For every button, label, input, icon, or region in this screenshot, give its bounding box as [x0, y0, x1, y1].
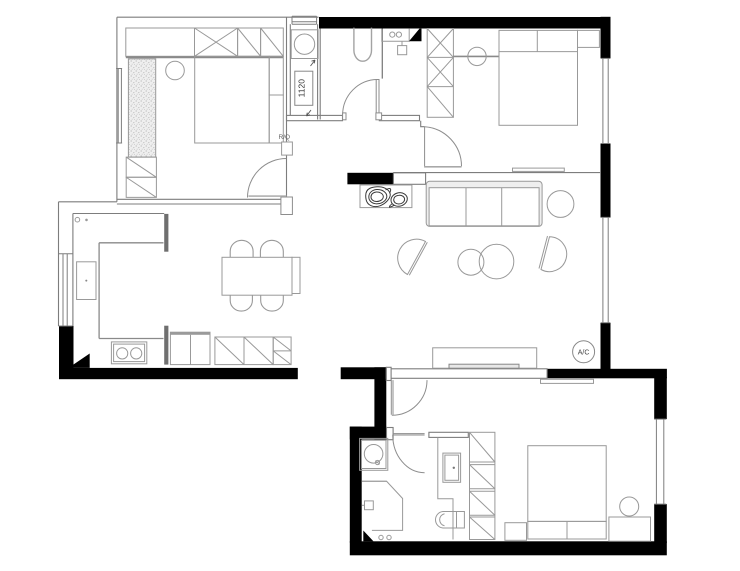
- svg-text:1120: 1120: [296, 79, 306, 98]
- svg-text:A/C: A/C: [578, 349, 590, 356]
- svg-text:R/Q: R/Q: [279, 134, 291, 141]
